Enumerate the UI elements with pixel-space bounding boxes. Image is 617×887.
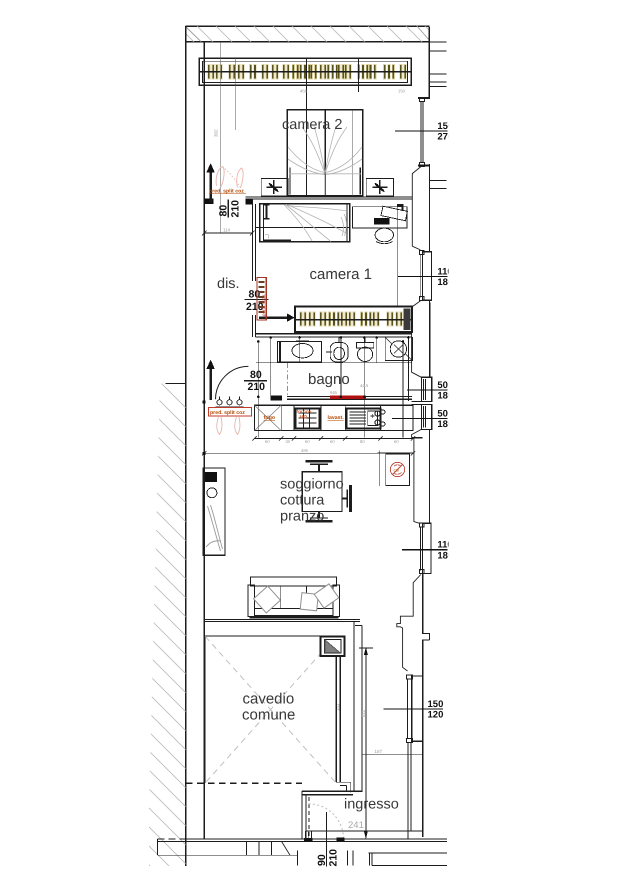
svg-text:60: 60 <box>394 439 399 444</box>
svg-text:cottura: cottura <box>280 493 325 509</box>
svg-text:30: 30 <box>286 439 291 444</box>
svg-text:pred. split coz: pred. split coz <box>210 410 245 416</box>
svg-text:bagno: bagno <box>308 371 350 388</box>
svg-text:50: 50 <box>437 380 448 391</box>
svg-text:945: 945 <box>330 390 338 395</box>
svg-text:cal: cal <box>394 468 399 473</box>
svg-text:camera 2: camera 2 <box>282 117 342 133</box>
svg-text:80: 80 <box>249 289 261 301</box>
svg-text:60: 60 <box>305 439 310 444</box>
svg-text:456: 456 <box>300 89 308 94</box>
svg-text:150: 150 <box>398 89 406 94</box>
svg-text:porta scorr.: porta scorr. <box>261 293 266 316</box>
svg-text:44.5: 44.5 <box>360 383 369 388</box>
svg-text:210: 210 <box>230 200 242 218</box>
svg-text:495: 495 <box>301 448 309 453</box>
svg-text:60: 60 <box>330 439 335 444</box>
svg-text:80: 80 <box>360 439 365 444</box>
svg-text:MO: MO <box>300 415 308 421</box>
svg-text:camera 1: camera 1 <box>310 266 373 283</box>
svg-text:comune: comune <box>242 707 295 724</box>
svg-text:80: 80 <box>250 369 262 381</box>
svg-text:114: 114 <box>223 228 231 233</box>
svg-text:511: 511 <box>361 709 366 717</box>
svg-text:150: 150 <box>428 699 444 710</box>
svg-text:241: 241 <box>348 820 364 831</box>
svg-text:frigo: frigo <box>264 415 276 421</box>
svg-text:187: 187 <box>375 749 383 754</box>
svg-text:cavedio: cavedio <box>243 691 295 708</box>
svg-text:dis.: dis. <box>217 276 240 292</box>
svg-text:210: 210 <box>248 381 266 393</box>
svg-text:lavast.: lavast. <box>328 415 345 421</box>
svg-text:soggiorno: soggiorno <box>280 477 344 493</box>
svg-text:302: 302 <box>214 129 219 137</box>
svg-text:50: 50 <box>437 408 448 419</box>
svg-text:pranzo: pranzo <box>280 509 324 525</box>
svg-text:210: 210 <box>328 849 340 867</box>
svg-text:forno+: forno+ <box>297 409 312 415</box>
svg-text:ingresso: ingresso <box>344 797 399 813</box>
svg-text:90: 90 <box>316 854 328 866</box>
svg-text:120: 120 <box>428 710 444 721</box>
svg-text:60: 60 <box>265 439 270 444</box>
